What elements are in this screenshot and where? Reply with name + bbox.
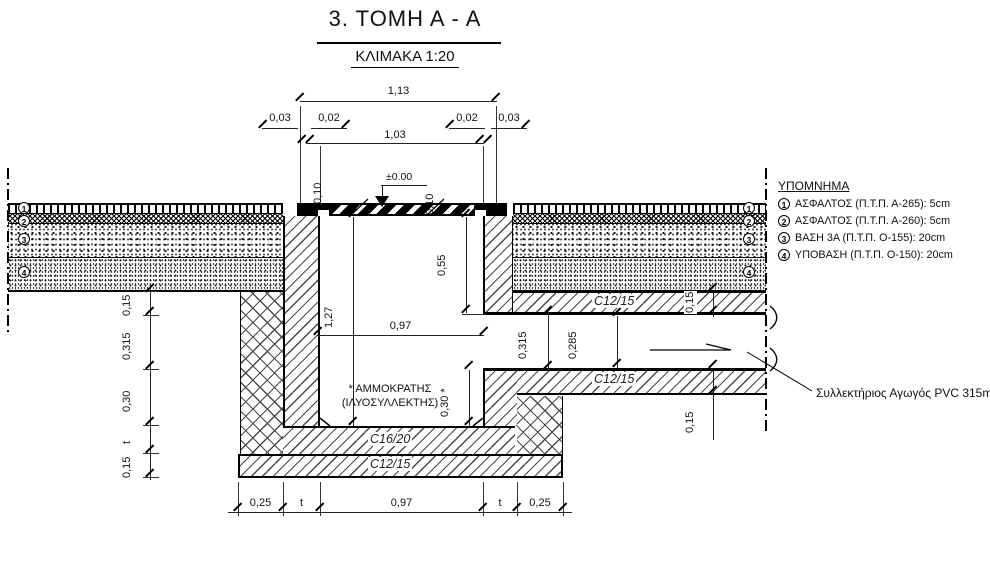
dim-left-chain-5: 0,15: [121, 457, 134, 478]
dim-pipe-height: 0,285: [567, 331, 580, 359]
layer-marker-left-3: 3: [18, 233, 30, 245]
dim-bottom-chain-4: t: [483, 497, 517, 509]
legend-item-4: 4 ΥΠΟΒΑΣΗ (Π.Τ.Π. Ο-150): 20cm: [778, 249, 990, 261]
extension-line: [563, 482, 564, 516]
label-slab-lower: C12/15: [592, 372, 636, 386]
dim-left-chain-4: t: [121, 441, 134, 444]
legend: ΥΠΟΜΝΗΜΑ 1 ΑΣΦΑΛΤΟΣ (Π.Τ.Π. Α-265): 5cm …: [778, 179, 990, 261]
scale-label-text: ΚΛΙΜΑΚΑ 1:20: [351, 48, 458, 68]
pipe-slab-upper: [513, 292, 766, 315]
dim-chamber-width: 0,97: [317, 320, 484, 332]
frame-rebate-left: [318, 210, 329, 216]
dim-left-chain-2: 0,315: [121, 332, 134, 360]
legend-num-1: 1: [778, 198, 790, 210]
dim-opening-height: 0,315: [517, 331, 530, 359]
legend-num-4: 4: [778, 249, 790, 261]
backfill-left: [240, 292, 283, 454]
frame-rebate-right: [475, 210, 486, 216]
dim-clear-top: 1,03: [306, 129, 484, 141]
label-slab-upper: C12/15: [592, 294, 636, 308]
layer-marker-right-2: 2: [743, 215, 755, 227]
extension-line: [462, 314, 486, 315]
chamber-note-line1: * ΑΜΜΟΚΡΑΤΗΣ: [315, 383, 465, 395]
backfill-right: [517, 396, 563, 454]
flow-arrow-icon: [650, 344, 731, 350]
legend-item-1: 1 ΑΣΦΑΛΤΟΣ (Π.Τ.Π. Α-265): 5cm: [778, 198, 990, 210]
level-arrow-icon: [375, 196, 389, 207]
chamber-note-line2: (ΙΛΥΟΣΥΛΛΕΚΤΗΣ): [315, 397, 465, 409]
layer-marker-right-4: 4: [743, 266, 755, 278]
pipe-slab-lower: [517, 368, 766, 395]
road-left-layer3: [8, 224, 283, 258]
level-leader-v: [382, 185, 383, 196]
scale-label: ΚΛΙΜΑΚΑ 1:20: [290, 48, 520, 65]
road-right-layer3: [513, 224, 766, 258]
dim-bottom-chain-3: 0,97: [320, 497, 483, 509]
legend-num-3: 3: [778, 232, 790, 244]
legend-text-3: ΒΑΣΗ 3Α (Π.Τ.Π. Ο-155): 20cm: [795, 232, 945, 244]
dim-wall-top-left: 0,10: [312, 183, 325, 204]
matchline-left: [7, 168, 9, 333]
extension-line: [496, 106, 497, 203]
road-left-layer4: [8, 258, 283, 292]
label-base-slab: C16/20: [368, 432, 412, 446]
title-underline: [317, 42, 501, 44]
break-line-top-icon: [770, 306, 777, 329]
drawing-canvas: 3. ΤΟΜΗ Α - Α ΚΛΙΜΑΚΑ 1:20 1 2 3 4 1 2 3…: [0, 0, 990, 568]
dim-upper-slab: 0,15: [684, 291, 697, 314]
dim-left-chain-1: 0,15: [121, 295, 134, 316]
dimline-total-width: [300, 101, 497, 102]
dimline-chamber-width: [317, 335, 484, 336]
layer-marker-left-1: 1: [18, 202, 30, 214]
label-lean-slab: C12/15: [368, 457, 412, 471]
road-right-layer2: [513, 214, 766, 224]
floor-chamfers: [320, 418, 483, 426]
legend-title: ΥΠΟΜΝΗΜΑ: [778, 179, 990, 193]
dim-total-width: 1,13: [300, 85, 497, 97]
pipe-callout-label: Συλλεκτήριος Αγωγός PVC 315mm: [816, 386, 990, 400]
level-leader-h: [381, 185, 427, 186]
dim-left-chain-3: 0,30: [121, 391, 134, 412]
page-title: 3. ΤΟΜΗ Α - Α: [290, 6, 520, 32]
dimline-left-chain: [150, 292, 151, 480]
break-line-bottom-icon: [770, 348, 777, 371]
dim-upper-chamber: 0,55: [436, 255, 449, 276]
dimline-clear-top: [306, 143, 484, 144]
dim-tick: [708, 359, 717, 368]
road-left-layer2: [8, 214, 283, 224]
dimline-edge-left: [262, 128, 298, 129]
dim-lower-slab: 0,15: [684, 412, 697, 433]
layer-marker-left-4: 4: [18, 266, 30, 278]
dim-lip-right: 0,02: [449, 112, 485, 124]
dim-lip-left: 0,02: [311, 112, 347, 124]
dim-wall-top-right: 0,10: [424, 194, 437, 215]
legend-text-2: ΑΣΦΑΛΤΟΣ (Π.Τ.Π. Α-260): 5cm: [795, 215, 950, 227]
dim-bottom-chain-2: t: [283, 497, 320, 509]
matchline-right: [765, 168, 767, 434]
layer-marker-left-2: 2: [18, 215, 30, 227]
legend-num-2: 2: [778, 215, 790, 227]
road-left-layer1: [8, 203, 283, 214]
manhole-wall-right-lower: [483, 368, 517, 426]
dim-edge-left: 0,03: [262, 112, 298, 124]
extension-line: [300, 106, 301, 203]
dim-tick: [464, 360, 473, 369]
dim-bottom-chain-5: 0,25: [517, 497, 563, 509]
layer-marker-right-1: 1: [743, 202, 755, 214]
extension-line: [483, 146, 484, 203]
level-label: ±0.00: [386, 171, 412, 183]
road-right-layer4: [513, 258, 766, 292]
manhole-wall-right-upper: [483, 216, 513, 315]
dimline-upper-slab: [713, 290, 714, 317]
legend-text-4: ΥΠΟΒΑΣΗ (Π.Τ.Π. Ο-150): 20cm: [795, 249, 953, 261]
dimline-bottom-chain: [228, 512, 572, 513]
dimline-upper-chamber: [466, 217, 467, 313]
legend-item-3: 3 ΒΑΣΗ 3Α (Π.Τ.Π. Ο-155): 20cm: [778, 232, 990, 244]
legend-text-1: ΑΣΦΑΛΤΟΣ (Π.Τ.Π. Α-265): 5cm: [795, 198, 950, 210]
legend-item-2: 2 ΑΣΦΑΛΤΟΣ (Π.Τ.Π. Α-260): 5cm: [778, 215, 990, 227]
dim-bottom-chain-1: 0,25: [238, 497, 283, 509]
layer-marker-right-3: 3: [743, 233, 755, 245]
dim-tick: [483, 134, 492, 143]
road-right-layer1: [513, 203, 766, 214]
dimline-lower-slab: [713, 368, 714, 440]
